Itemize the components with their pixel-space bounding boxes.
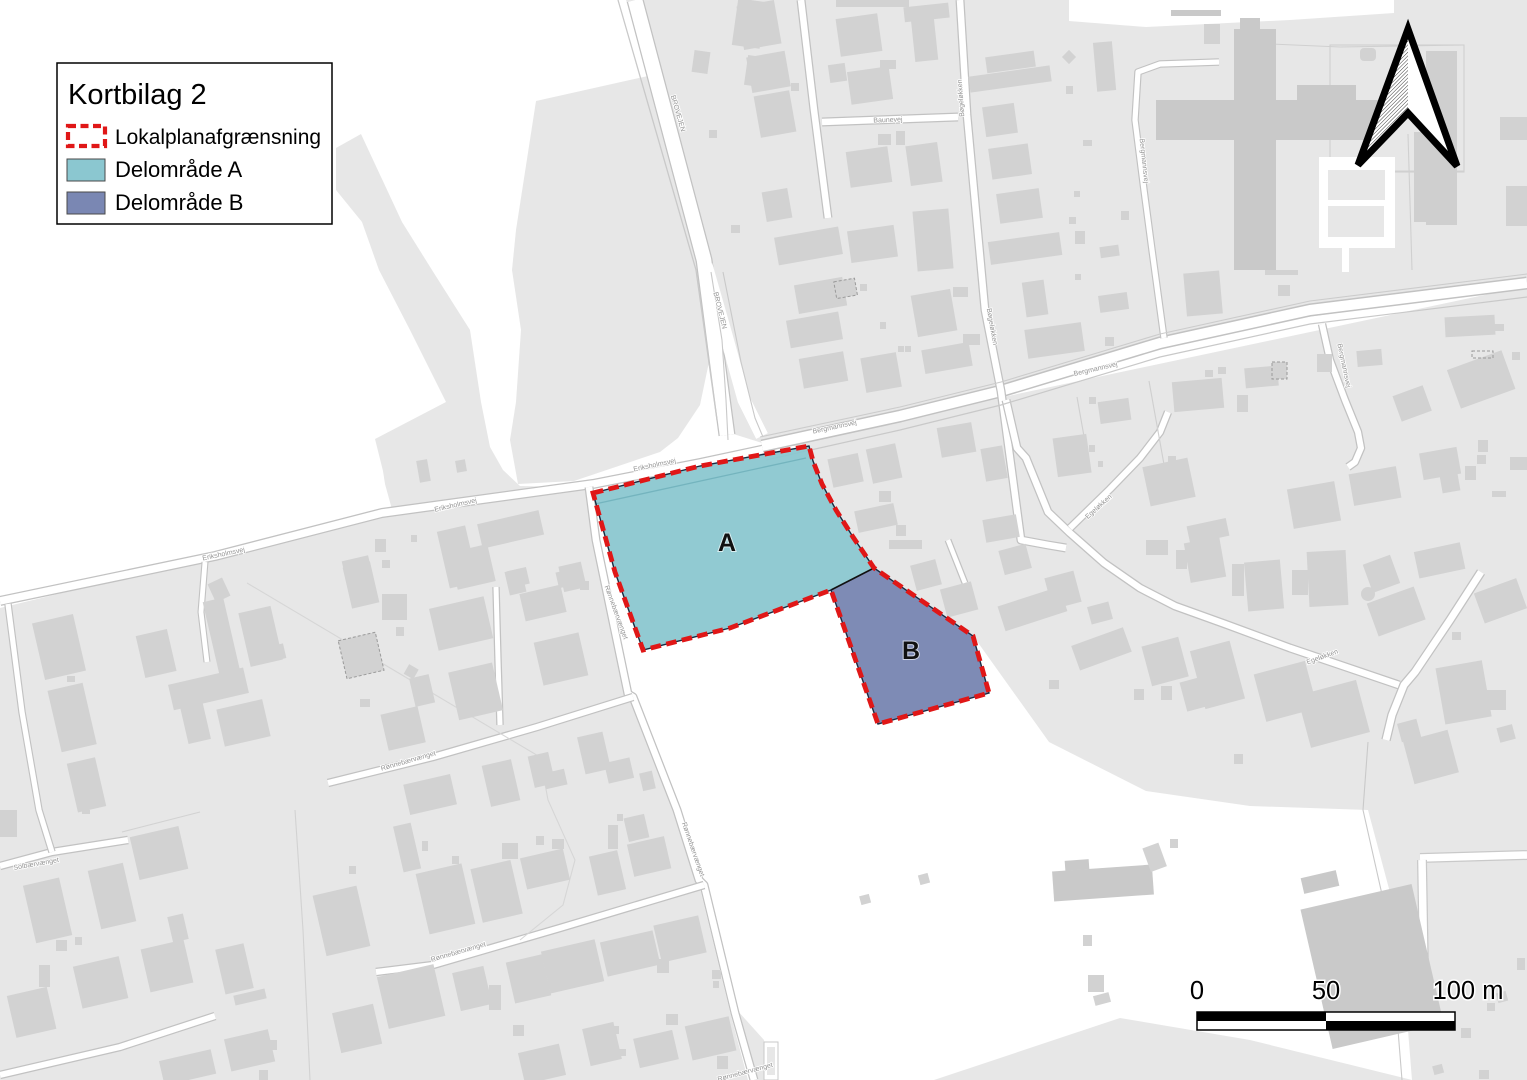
svg-text:Lokalplanafgrænsning: Lokalplanafgrænsning [115, 125, 321, 149]
svg-text:0: 0 [1190, 977, 1204, 1005]
svg-text:Kortbilag 2: Kortbilag 2 [68, 79, 207, 111]
svg-text:100 m: 100 m [1433, 977, 1504, 1005]
svg-text:B: B [902, 637, 920, 665]
svg-text:Delområde A: Delområde A [115, 157, 243, 182]
svg-text:A: A [718, 529, 736, 557]
svg-text:50: 50 [1312, 977, 1340, 1005]
svg-text:Delområde B: Delområde B [115, 190, 243, 215]
svg-text:Baunevej: Baunevej [873, 116, 903, 124]
